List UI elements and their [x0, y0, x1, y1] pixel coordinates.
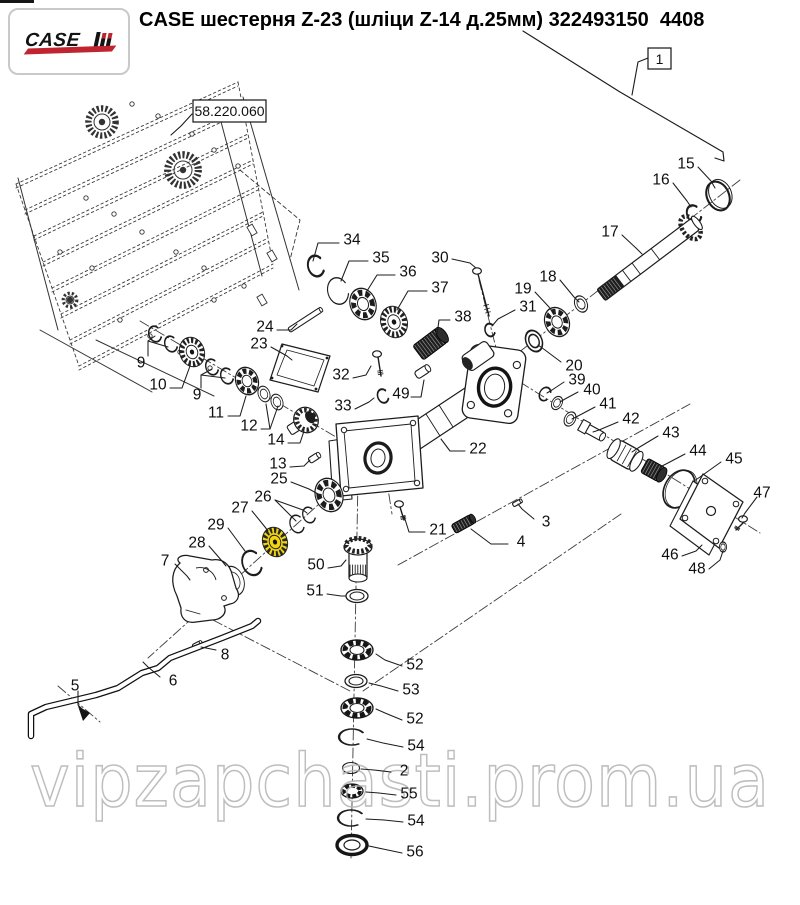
callout-5: 5 — [71, 678, 80, 695]
callout-31: 31 — [519, 299, 536, 316]
section-ref-box: 58.220.060 — [193, 100, 266, 122]
callout-47: 47 — [753, 485, 770, 502]
callout-44: 44 — [689, 443, 707, 460]
callout-29: 29 — [207, 517, 224, 534]
watermark: vipzapchasti.prom.ua — [30, 739, 770, 824]
callout-9: 9 — [193, 387, 202, 404]
callout-53: 53 — [402, 682, 419, 699]
callout-16: 16 — [652, 172, 669, 189]
callout-51: 51 — [306, 583, 323, 600]
callout-34: 34 — [343, 232, 361, 249]
callout-40: 40 — [583, 382, 601, 399]
callout-27: 27 — [231, 500, 248, 517]
exploded-parts-diagram: vipzapchasti.prom.ua 3435363738301931182… — [0, 0, 800, 905]
callout-42: 42 — [622, 411, 639, 428]
callout-26: 26 — [254, 489, 271, 506]
callout-43: 43 — [662, 425, 679, 442]
callout-41: 41 — [599, 396, 616, 413]
callout-49: 49 — [392, 386, 409, 403]
callout-21: 21 — [429, 522, 446, 539]
callout-46: 46 — [661, 547, 678, 564]
callout-7: 7 — [161, 553, 170, 570]
callout-52: 52 — [406, 657, 423, 674]
callout-38: 38 — [454, 309, 471, 326]
callout-4: 4 — [517, 534, 526, 551]
section-ref-label: 58.220.060 — [194, 103, 264, 119]
callout-2: 2 — [400, 763, 409, 780]
callout-28: 28 — [188, 535, 205, 552]
callout-12: 12 — [240, 418, 257, 435]
assembly-ref-box: 1 — [648, 48, 671, 69]
callout-10: 10 — [149, 377, 167, 394]
callout-23: 23 — [250, 336, 267, 353]
callout-52: 52 — [406, 711, 423, 728]
callout-35: 35 — [372, 250, 389, 267]
callout-54: 54 — [407, 738, 425, 755]
callout-36: 36 — [399, 264, 416, 281]
callout-17: 17 — [601, 224, 618, 241]
callout-54: 54 — [407, 813, 425, 830]
callout-9: 9 — [137, 355, 146, 372]
callout-14: 14 — [267, 432, 285, 449]
callout-50: 50 — [307, 557, 325, 574]
catalog-page: CASE CASE шестерня Z-23 (шліци Z-14 д.25… — [0, 0, 800, 905]
assembly-ref-label: 1 — [656, 51, 664, 67]
callout-30: 30 — [431, 250, 449, 267]
callout-48: 48 — [688, 561, 705, 578]
callout-11: 11 — [208, 405, 224, 422]
callout-56: 56 — [406, 844, 423, 861]
callout-3: 3 — [542, 514, 551, 531]
callout-22: 22 — [469, 441, 486, 458]
callout-32: 32 — [332, 367, 349, 384]
callout-19: 19 — [514, 281, 531, 298]
callout-55: 55 — [400, 786, 417, 803]
callout-15: 15 — [677, 156, 694, 173]
callout-24: 24 — [256, 319, 274, 336]
callout-6: 6 — [169, 673, 178, 690]
callout-37: 37 — [431, 280, 448, 297]
callout-45: 45 — [725, 451, 742, 468]
callout-8: 8 — [221, 647, 230, 664]
callout-18: 18 — [539, 269, 556, 286]
callout-25: 25 — [270, 471, 287, 488]
callout-33: 33 — [334, 398, 351, 415]
